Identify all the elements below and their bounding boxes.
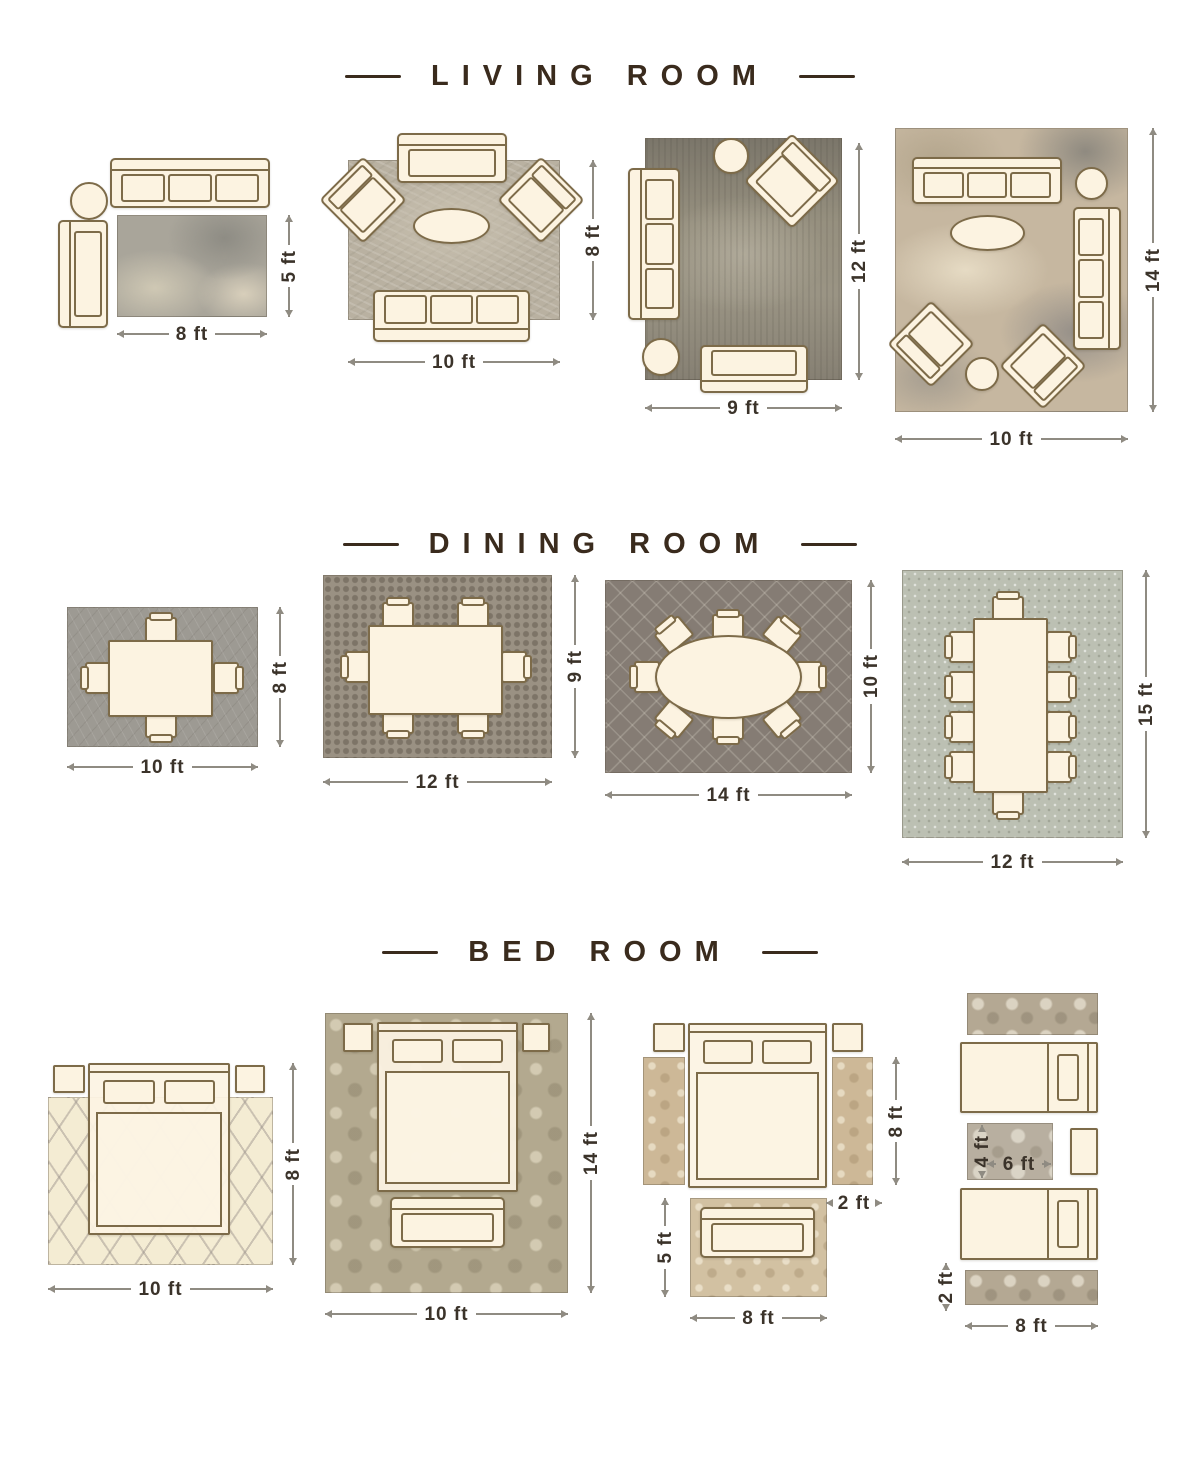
height-dimension: 9 ft xyxy=(562,575,588,758)
dimension-line xyxy=(215,333,267,335)
living-layout-3: 12 ft 9 ft xyxy=(620,135,880,430)
nightstand xyxy=(832,1023,863,1052)
dimension-line xyxy=(945,1308,947,1311)
sofa-seat xyxy=(645,223,674,264)
headboard xyxy=(90,1065,228,1073)
bedroom-layout-3: 8 ft 2 ft 5 ft 8 ft xyxy=(640,1015,910,1330)
dimension-line xyxy=(117,333,169,335)
dining-chair xyxy=(1046,711,1072,743)
dimension-line xyxy=(323,781,408,783)
sofa-back xyxy=(630,170,642,318)
dining-chair xyxy=(501,651,527,683)
nightstand xyxy=(235,1065,265,1093)
title-dash xyxy=(343,543,399,546)
width-dimension: 14 ft xyxy=(605,784,852,806)
section-title-living: LIVING ROOM xyxy=(0,60,1200,93)
dimension-line xyxy=(870,580,872,649)
bed xyxy=(688,1023,827,1188)
sofa-seat xyxy=(1078,301,1104,339)
runner-rug xyxy=(967,993,1098,1035)
pillow xyxy=(762,1040,812,1064)
height-dimension: 15 ft xyxy=(1133,570,1159,838)
bedroom-layout-2: 14 ft 10 ft xyxy=(320,1008,610,1323)
section-title-bedroom: BED ROOM xyxy=(0,936,1200,969)
width-dimension: 8 ft xyxy=(117,323,267,345)
bedroom-layout-1: 8 ft 10 ft xyxy=(40,1055,315,1307)
height-dimension: 5 ft xyxy=(276,215,302,317)
dimension-label: 9 ft xyxy=(566,650,585,683)
dining-layout-1: 8 ft 10 ft xyxy=(55,600,305,780)
dimension-line xyxy=(48,1288,131,1290)
dining-chair xyxy=(1046,631,1072,663)
sofa-back xyxy=(392,1199,503,1210)
height-dimension: 10 ft xyxy=(858,580,884,773)
sofa-seat xyxy=(74,231,102,317)
dimension-line xyxy=(1042,1163,1051,1165)
mid-rug-width-dimension: 6 ft xyxy=(987,1153,1051,1175)
sofa-seat xyxy=(1010,172,1051,198)
side-table xyxy=(1075,167,1108,200)
dimension-line xyxy=(1042,861,1123,863)
dimension-line xyxy=(476,1313,568,1315)
width-dimension: 8 ft xyxy=(690,1307,827,1329)
loveseat xyxy=(700,345,808,393)
sofa xyxy=(110,158,270,208)
coffee-table xyxy=(950,215,1025,251)
dining-table xyxy=(108,640,213,717)
sofa-seat xyxy=(121,174,165,202)
runner-length-dimension: 8 ft xyxy=(883,1057,909,1185)
sofa-seat xyxy=(476,295,519,324)
dimension-line xyxy=(858,289,860,380)
dimension-label: 2 ft xyxy=(937,1271,956,1304)
nightstand xyxy=(522,1023,550,1052)
dimension-line xyxy=(1152,297,1154,412)
coffee-table xyxy=(413,208,490,244)
sofa-seat xyxy=(1078,259,1104,297)
dimension-line xyxy=(288,287,290,317)
title-dash xyxy=(801,543,857,546)
headboard xyxy=(1087,1190,1096,1258)
sofa-seats xyxy=(399,146,505,181)
dimension-line xyxy=(758,794,852,796)
width-dimension: 9 ft xyxy=(645,397,842,419)
bed-body xyxy=(962,1190,1047,1258)
nightstand xyxy=(343,1023,373,1052)
title-dash xyxy=(345,75,401,78)
dimension-line xyxy=(279,698,281,747)
pillow xyxy=(164,1080,216,1104)
sofa-seat xyxy=(1078,218,1104,256)
dimension-line xyxy=(1145,570,1147,677)
sofa-seat xyxy=(384,295,427,324)
headboard xyxy=(379,1024,516,1032)
section-title-text: DINING ROOM xyxy=(429,528,772,561)
twin-bed xyxy=(960,1042,1098,1113)
dimension-line xyxy=(1055,1325,1098,1327)
pillow xyxy=(103,1080,155,1104)
sofa-seat xyxy=(645,268,674,309)
dimension-label: 10 ft xyxy=(140,758,184,777)
dimension-line xyxy=(870,704,872,773)
dining-table xyxy=(655,635,802,719)
dimension-line xyxy=(877,1202,882,1204)
side-table xyxy=(642,338,680,376)
dimension-line xyxy=(279,607,281,656)
height-dimension: 12 ft xyxy=(846,143,872,380)
dimension-line xyxy=(292,1063,294,1143)
headboard xyxy=(690,1025,825,1033)
runner-width-dimension: 2 ft xyxy=(826,1192,882,1214)
dimension-label: 8 ft xyxy=(584,224,603,257)
dining-chair xyxy=(1046,751,1072,783)
twin-bed xyxy=(960,1188,1098,1260)
width-dimension: 10 ft xyxy=(48,1278,273,1300)
pillows xyxy=(90,1073,228,1110)
width-dimension: 12 ft xyxy=(902,851,1123,873)
bed-body xyxy=(696,1072,819,1180)
bed xyxy=(377,1022,518,1192)
dimension-label: 8 ft xyxy=(284,1148,303,1181)
sofa-seat xyxy=(711,1223,804,1252)
section-title-dining: DINING ROOM xyxy=(0,528,1200,561)
dimension-line xyxy=(826,1202,831,1204)
dimension-line xyxy=(592,160,594,219)
sofa xyxy=(1073,207,1121,350)
dimension-line xyxy=(1041,438,1128,440)
sofa-seat xyxy=(168,174,212,202)
dimension-line xyxy=(348,361,425,363)
bench xyxy=(390,1197,505,1248)
dimension-line xyxy=(782,1317,827,1319)
rug-size-guide: LIVING ROOM 5 ft 8 ft xyxy=(0,0,1200,1467)
dimension-line xyxy=(590,1180,592,1293)
dimension-line xyxy=(981,1173,983,1178)
width-dimension: 10 ft xyxy=(348,351,560,373)
nightstand xyxy=(1070,1128,1098,1175)
dimension-label: 12 ft xyxy=(990,853,1034,872)
dimension-line xyxy=(292,1185,294,1265)
runner-rug xyxy=(965,1270,1098,1305)
dimension-line xyxy=(190,1288,273,1290)
dimension-label: 2 ft xyxy=(838,1194,871,1213)
loveseat xyxy=(58,220,108,328)
dimension-line xyxy=(592,261,594,320)
dimension-line xyxy=(574,575,576,645)
sofa xyxy=(628,168,680,320)
sofa-seat xyxy=(967,172,1008,198)
dimension-label: 12 ft xyxy=(415,773,459,792)
dimension-line xyxy=(902,861,983,863)
dimension-label: 5 ft xyxy=(280,250,299,283)
side-table xyxy=(965,357,999,391)
dimension-line xyxy=(895,1057,897,1100)
dimension-label: 5 ft xyxy=(656,1231,675,1264)
dining-chair xyxy=(949,751,975,783)
dimension-label: 14 ft xyxy=(706,786,750,805)
pillow xyxy=(1057,1200,1079,1248)
dimension-label: 8 ft xyxy=(887,1105,906,1138)
nightstand xyxy=(653,1023,685,1052)
dimension-line xyxy=(690,1317,735,1319)
side-table xyxy=(70,182,108,220)
dimension-label: 14 ft xyxy=(582,1131,601,1175)
dimension-label: 8 ft xyxy=(271,661,290,694)
dimension-label: 8 ft xyxy=(1015,1317,1048,1336)
dimension-line xyxy=(981,1125,983,1130)
sofa-seat xyxy=(711,350,797,376)
pillow xyxy=(1057,1054,1079,1101)
dining-chair xyxy=(949,631,975,663)
dining-layout-3: 10 ft 14 ft xyxy=(600,578,885,803)
width-dimension: 8 ft xyxy=(965,1315,1098,1337)
dimension-line xyxy=(467,781,552,783)
sofa-seat xyxy=(923,172,964,198)
dimension-line xyxy=(895,438,982,440)
dimension-label: 15 ft xyxy=(1137,682,1156,726)
pillow xyxy=(452,1039,503,1063)
sofa xyxy=(912,157,1062,204)
sofa-seat xyxy=(645,179,674,220)
dining-layout-4: 15 ft 12 ft xyxy=(895,565,1160,870)
height-dimension: 14 ft xyxy=(1140,128,1166,412)
bed-body xyxy=(385,1071,510,1184)
dimension-line xyxy=(590,1013,592,1126)
dimension-line xyxy=(574,688,576,758)
dining-table xyxy=(973,618,1048,793)
dimension-line xyxy=(895,1142,897,1185)
title-dash xyxy=(762,951,818,954)
sofa-seats xyxy=(914,169,1060,202)
pillow xyxy=(392,1039,443,1063)
dimension-line xyxy=(1152,128,1154,243)
dimension-label: 6 ft xyxy=(1003,1155,1036,1174)
sofa xyxy=(373,290,530,342)
dimension-line xyxy=(664,1269,666,1297)
bedroom-layout-4: 4 ft 6 ft 2 ft 8 ft xyxy=(925,985,1185,1345)
sofa-back xyxy=(399,135,505,146)
dimension-line xyxy=(767,407,842,409)
width-dimension: 10 ft xyxy=(895,428,1128,450)
sofa-seats xyxy=(71,222,106,326)
dimension-line xyxy=(483,361,560,363)
dimension-label: 10 ft xyxy=(138,1280,182,1299)
title-dash xyxy=(382,951,438,954)
sofa-back xyxy=(112,160,268,171)
dining-chair xyxy=(949,671,975,703)
sofa-back xyxy=(60,222,71,326)
height-dimension: 14 ft xyxy=(578,1013,604,1293)
dimension-label: 14 ft xyxy=(1144,248,1163,292)
section-title-text: LIVING ROOM xyxy=(431,60,769,93)
dining-layout-2: 9 ft 12 ft xyxy=(320,575,590,797)
dining-chair xyxy=(949,711,975,743)
side-table xyxy=(713,138,749,174)
runner-rug xyxy=(643,1057,685,1185)
dimension-line xyxy=(645,407,720,409)
dimension-line xyxy=(858,143,860,234)
dimension-line xyxy=(192,766,258,768)
sofa-seats xyxy=(702,1220,813,1256)
dimension-line xyxy=(664,1198,666,1226)
dimension-label: 12 ft xyxy=(850,239,869,283)
pillow-zone xyxy=(1047,1044,1087,1111)
dimension-line xyxy=(288,215,290,245)
dimension-line xyxy=(325,1313,417,1315)
dimension-label: 8 ft xyxy=(176,325,209,344)
dimension-label: 9 ft xyxy=(727,399,760,418)
sofa-back xyxy=(702,380,806,391)
dining-chair xyxy=(1046,671,1072,703)
dimension-label: 10 ft xyxy=(424,1305,468,1324)
runner-width-dimension: 2 ft xyxy=(933,1263,959,1311)
height-dimension: 8 ft xyxy=(267,607,293,747)
sofa-seats xyxy=(702,347,806,380)
bed-body xyxy=(96,1112,222,1227)
pillows xyxy=(379,1032,516,1069)
sofa-seat xyxy=(430,295,473,324)
dimension-line xyxy=(987,1163,996,1165)
sofa-seat xyxy=(408,149,496,177)
sofa-seats xyxy=(112,171,268,206)
pillow-zone xyxy=(1047,1190,1087,1258)
pillow xyxy=(703,1040,753,1064)
dining-chair xyxy=(213,662,239,694)
sofa-back xyxy=(702,1209,813,1220)
living-layout-2: 8 ft 10 ft xyxy=(330,125,620,375)
bed xyxy=(88,1063,230,1235)
title-dash xyxy=(799,75,855,78)
dimension-line xyxy=(1145,731,1147,838)
section-title-text: BED ROOM xyxy=(468,936,732,969)
height-dimension: 8 ft xyxy=(580,160,606,320)
sofa-back xyxy=(914,159,1060,169)
dimension-line xyxy=(67,766,133,768)
height-dimension: 8 ft xyxy=(280,1063,306,1265)
living-layout-4: 14 ft 10 ft xyxy=(890,120,1190,450)
sofa-back xyxy=(1108,209,1119,348)
dimension-line xyxy=(965,1325,1008,1327)
living-layout-1: 5 ft 8 ft xyxy=(50,140,350,355)
sofa-seat xyxy=(401,1213,494,1242)
width-dimension: 10 ft xyxy=(325,1303,568,1325)
headboard xyxy=(1087,1044,1096,1111)
loveseat xyxy=(397,133,507,183)
sofa-back xyxy=(375,328,528,340)
bed-body xyxy=(962,1044,1047,1111)
rug xyxy=(117,215,267,317)
dining-table xyxy=(368,625,503,715)
dimension-label: 10 ft xyxy=(432,353,476,372)
dimension-label: 10 ft xyxy=(862,654,881,698)
width-dimension: 10 ft xyxy=(67,756,258,778)
dimension-line xyxy=(945,1263,947,1266)
dimension-label: 10 ft xyxy=(989,430,1033,449)
sofa-seat xyxy=(215,174,259,202)
runner-rug xyxy=(832,1057,873,1185)
pillows xyxy=(690,1033,825,1070)
sofa-seats xyxy=(392,1210,503,1246)
sofa-seats xyxy=(642,170,678,318)
nightstand xyxy=(53,1065,85,1093)
height-dimension: 5 ft xyxy=(652,1198,678,1297)
dimension-line xyxy=(605,794,699,796)
sofa-seats xyxy=(375,292,528,328)
width-dimension: 12 ft xyxy=(323,771,552,793)
dimension-label: 8 ft xyxy=(742,1309,775,1328)
sofa-seats xyxy=(1075,209,1108,348)
bench xyxy=(700,1207,815,1258)
